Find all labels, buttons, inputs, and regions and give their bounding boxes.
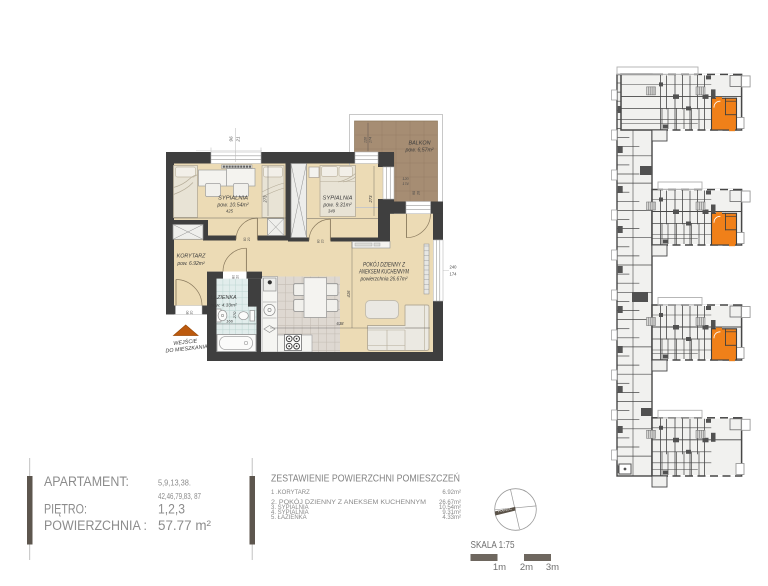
svg-text:powierzchnia 26.67m²: powierzchnia 26.67m² <box>360 277 408 283</box>
svg-text:5,9,13,38.: 5,9,13,38. <box>158 479 191 488</box>
svg-text:1m: 1m <box>493 562 506 573</box>
svg-text:pow. 10.54m²: pow. 10.54m² <box>216 203 248 209</box>
svg-text:20: 20 <box>247 237 251 241</box>
svg-text:ŁAZIENKA: ŁAZIENKA <box>211 295 237 301</box>
svg-text:174: 174 <box>369 137 373 143</box>
svg-text:SYPIALNIA: SYPIALNIA <box>323 196 353 202</box>
svg-text:90: 90 <box>412 191 416 195</box>
svg-text:pow. 6,57m²: pow. 6,57m² <box>405 148 434 154</box>
svg-text:ZESTAWIENIE POWIERZCHNI POMIE: ZESTAWIENIE POWIERZCHNI POMIESZCZEŃ <box>271 473 460 484</box>
svg-text:21: 21 <box>235 136 240 143</box>
svg-text:BALKON: BALKON <box>409 141 432 147</box>
svg-text:POWIERZCHNIA :: POWIERZCHNIA : <box>44 518 147 533</box>
svg-text:120: 120 <box>402 177 409 181</box>
svg-text:120: 120 <box>364 136 368 143</box>
svg-text:5. ŁAZIENKA: 5. ŁAZIENKA <box>271 515 307 521</box>
svg-text:PIĘTRO:: PIĘTRO: <box>44 502 87 517</box>
svg-text:pow. 6.92m²: pow. 6.92m² <box>176 261 205 267</box>
svg-text:425: 425 <box>226 209 234 214</box>
svg-text:20: 20 <box>417 191 421 196</box>
svg-text:270: 270 <box>232 311 237 319</box>
svg-text:KORYTARZ: KORYTARZ <box>177 254 206 260</box>
svg-text:240: 240 <box>450 265 458 270</box>
svg-text:96: 96 <box>228 136 233 142</box>
svg-text:174: 174 <box>450 272 458 277</box>
svg-text:57.77 m²: 57.77 m² <box>158 518 211 533</box>
svg-text:273: 273 <box>263 195 268 204</box>
svg-text:APARTAMENT:: APARTAMENT: <box>44 474 129 489</box>
svg-text:4.33m²: 4.33m² <box>442 515 461 521</box>
svg-text:638: 638 <box>337 321 345 326</box>
svg-text:1 .KORYTARZ: 1 .KORYTARZ <box>271 490 310 496</box>
svg-text:pow. 9.31m²: pow. 9.31m² <box>322 203 352 209</box>
svg-text:20: 20 <box>190 311 194 315</box>
svg-text:ANEKSEM KUCHENNYM: ANEKSEM KUCHENNYM <box>358 270 409 276</box>
svg-text:416: 416 <box>346 290 351 298</box>
svg-text:1,2,3: 1,2,3 <box>158 502 185 517</box>
svg-text:pow. 4.33m²: pow. 4.33m² <box>210 303 238 309</box>
svg-text:SKALA 1:75: SKALA 1:75 <box>471 539 515 551</box>
svg-text:3m: 3m <box>546 562 559 573</box>
svg-text:20: 20 <box>321 239 325 243</box>
svg-text:6.92m²: 6.92m² <box>442 490 461 496</box>
svg-text:SYPIALNIA: SYPIALNIA <box>218 196 248 202</box>
svg-text:174: 174 <box>402 182 408 186</box>
svg-text:42,46,79,83, 87: 42,46,79,83, 87 <box>158 492 201 501</box>
svg-text:POKÓJ DZIENNY Z: POKÓJ DZIENNY Z <box>363 261 405 268</box>
svg-text:2m: 2m <box>520 562 533 573</box>
svg-text:20: 20 <box>236 275 240 279</box>
svg-text:273: 273 <box>368 195 373 204</box>
svg-text:349: 349 <box>328 209 336 214</box>
